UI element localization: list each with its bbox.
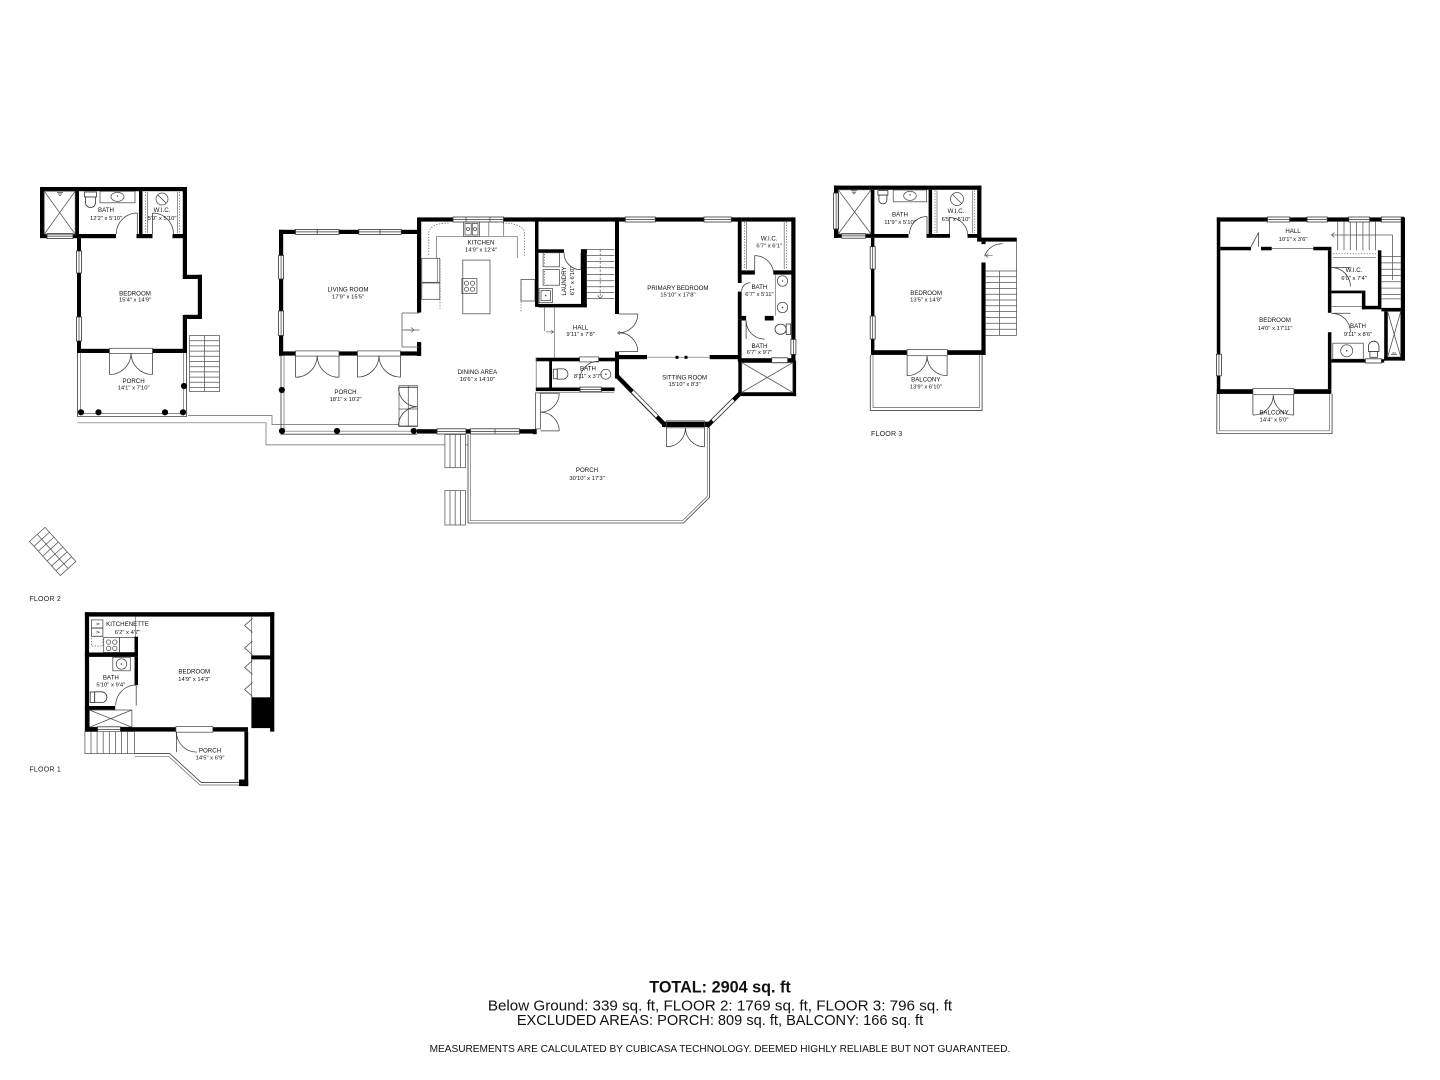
svg-text:W.I.C.: W.I.C. [761,236,778,243]
svg-text:17'9" x 15'5": 17'9" x 15'5" [332,294,364,300]
svg-text:LAUNDRY: LAUNDRY [561,266,568,295]
svg-text:LIVING ROOM: LIVING ROOM [328,287,369,294]
svg-text:15'10" x 17'8": 15'10" x 17'8" [660,293,695,299]
svg-text:14'4" x 5'0": 14'4" x 5'0" [1260,417,1289,423]
svg-text:6'2" x 4'7": 6'2" x 4'7" [115,630,141,636]
svg-text:BATH: BATH [751,284,767,291]
svg-text:W.I.C.: W.I.C. [1346,267,1363,274]
svg-text:6'5" x 5'10": 6'5" x 5'10" [942,217,971,223]
svg-text:6'1" x 6'10": 6'1" x 6'10" [570,267,576,296]
svg-text:SITTING ROOM: SITTING ROOM [662,374,707,381]
svg-text:15'10" x 8'3": 15'10" x 8'3" [669,382,701,388]
svg-text:BATH: BATH [98,207,114,214]
svg-text:BATH: BATH [752,343,768,350]
svg-text:8'11" x 3'7": 8'11" x 3'7" [574,374,602,380]
svg-text:5'9" x 5'10": 5'9" x 5'10" [148,216,177,222]
svg-text:KITCHEN: KITCHEN [468,240,495,247]
svg-text:BATH: BATH [580,366,596,373]
svg-text:5'10" x 9'4": 5'10" x 9'4" [96,683,125,689]
svg-text:15'4" x 14'9": 15'4" x 14'9" [119,297,151,303]
svg-text:Below Ground: 339 sq. ft, FLOO: Below Ground: 339 sq. ft, FLOOR 2: 1769 … [488,998,953,1015]
svg-text:MEASUREMENTS ARE CALCULATED BY: MEASUREMENTS ARE CALCULATED BY CUBICASA … [430,1044,1011,1055]
svg-text:BATH: BATH [1350,323,1366,330]
svg-text:BEDROOM: BEDROOM [119,290,151,297]
svg-text:FLOOR 3: FLOOR 3 [871,431,903,438]
svg-text:BEDROOM: BEDROOM [1259,317,1291,324]
svg-text:PORCH: PORCH [199,747,221,754]
svg-text:14'0" x 17'11": 14'0" x 17'11" [1258,326,1293,332]
svg-text:14'9" x 14'3": 14'9" x 14'3" [178,677,210,683]
svg-text:DINING AREA: DINING AREA [458,369,498,376]
svg-text:10'1" x 3'6": 10'1" x 3'6" [1279,237,1308,243]
svg-text:13'9" x 6'10": 13'9" x 6'10" [910,384,942,390]
svg-text:14'5" x 6'9": 14'5" x 6'9" [196,756,225,762]
svg-text:11'9" x 5'10": 11'9" x 5'10" [884,220,916,226]
svg-text:TOTAL: 2904 sq. ft: TOTAL: 2904 sq. ft [649,979,791,997]
svg-text:W.I.C.: W.I.C. [948,208,965,215]
svg-text:PRIMARY BEDROOM: PRIMARY BEDROOM [647,285,708,292]
svg-text:BEDROOM: BEDROOM [910,290,942,297]
svg-text:30'10" x 17'3": 30'10" x 17'3" [569,476,604,482]
svg-text:HALL: HALL [573,324,589,331]
svg-text:BEDROOM: BEDROOM [178,669,210,676]
svg-text:9'11" x 8'6": 9'11" x 8'6" [1344,332,1372,338]
svg-text:FLOOR 2: FLOOR 2 [29,596,61,603]
svg-text:HALL: HALL [1285,228,1301,235]
svg-text:16'6" x 14'10": 16'6" x 14'10" [460,377,495,383]
svg-text:6'7" x 6'1": 6'7" x 6'1" [756,243,782,249]
svg-text:BALCONY: BALCONY [911,377,940,384]
svg-text:14'9" x 12'4": 14'9" x 12'4" [465,247,497,253]
svg-text:14'1" x 7'10": 14'1" x 7'10" [118,385,150,391]
svg-text:6'7" x 9'7": 6'7" x 9'7" [747,350,773,356]
svg-text:BATH: BATH [103,674,119,681]
svg-text:BATH: BATH [892,212,908,219]
svg-text:12'2" x 5'10": 12'2" x 5'10" [90,216,122,222]
svg-text:PORCH: PORCH [123,378,145,385]
svg-text:BALCONY: BALCONY [1259,409,1288,416]
svg-text:KITCHENETTE: KITCHENETTE [106,621,149,628]
svg-text:PORCH: PORCH [334,389,356,396]
svg-text:13'5" x 14'9": 13'5" x 14'9" [910,297,942,303]
svg-text:18'1" x 10'2": 18'1" x 10'2" [329,397,361,403]
svg-text:6'7" x 5'11": 6'7" x 5'11" [745,292,773,298]
svg-text:6'0" x 7'4": 6'0" x 7'4" [1341,276,1367,282]
svg-text:PORCH: PORCH [576,467,598,474]
svg-text:EXCLUDED AREAS: PORCH: 809 sq.: EXCLUDED AREAS: PORCH: 809 sq. ft, BALCO… [517,1013,923,1029]
svg-text:9'11" x 7'8": 9'11" x 7'8" [566,332,594,338]
svg-text:FLOOR 1: FLOOR 1 [29,767,61,774]
